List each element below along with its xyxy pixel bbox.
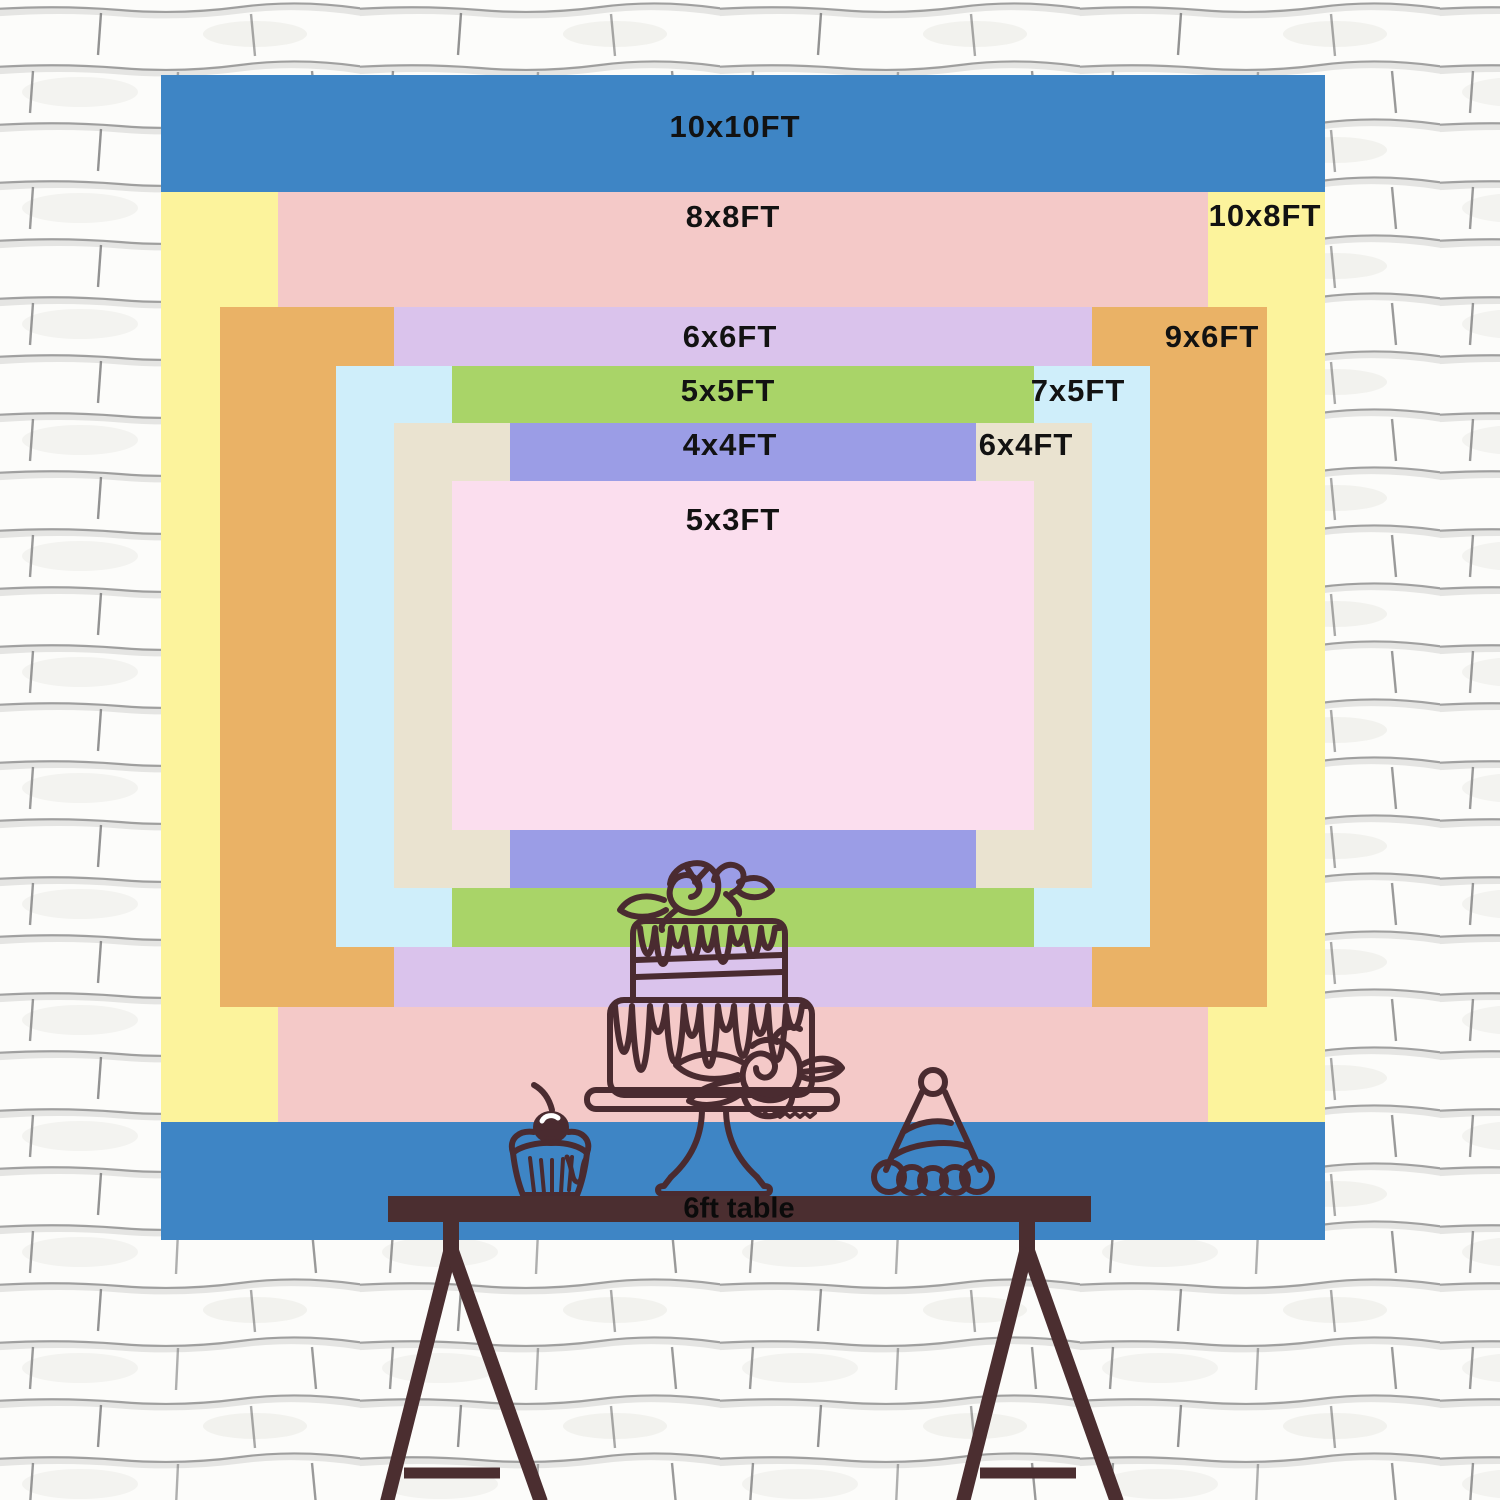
size-label-5x3ft: 5x3FT <box>686 502 781 538</box>
size-label-8x8ft: 8x8FT <box>686 199 781 235</box>
size-label-10x10ft: 10x10FT <box>669 109 800 145</box>
size-label-7x5ft: 7x5FT <box>1031 373 1126 409</box>
table-width-label: 6ft table <box>683 1193 794 1226</box>
size-label-9x6ft: 9x6FT <box>1165 319 1260 355</box>
size-label-4x4ft: 4x4FT <box>683 427 778 463</box>
size-label-6x6ft: 6x6FT <box>683 319 778 355</box>
size-rectangles-stack: 10x10FT10x8FT8x8FT9x6FT6x6FT7x5FT5x5FT6x… <box>0 0 1500 1500</box>
backdrop-size-chart: 10x10FT10x8FT8x8FT9x6FT6x6FT7x5FT5x5FT6x… <box>0 0 1500 1500</box>
size-label-5x5ft: 5x5FT <box>681 373 776 409</box>
size-label-10x8ft: 10x8FT <box>1209 198 1322 234</box>
size-label-6x4ft: 6x4FT <box>979 427 1074 463</box>
